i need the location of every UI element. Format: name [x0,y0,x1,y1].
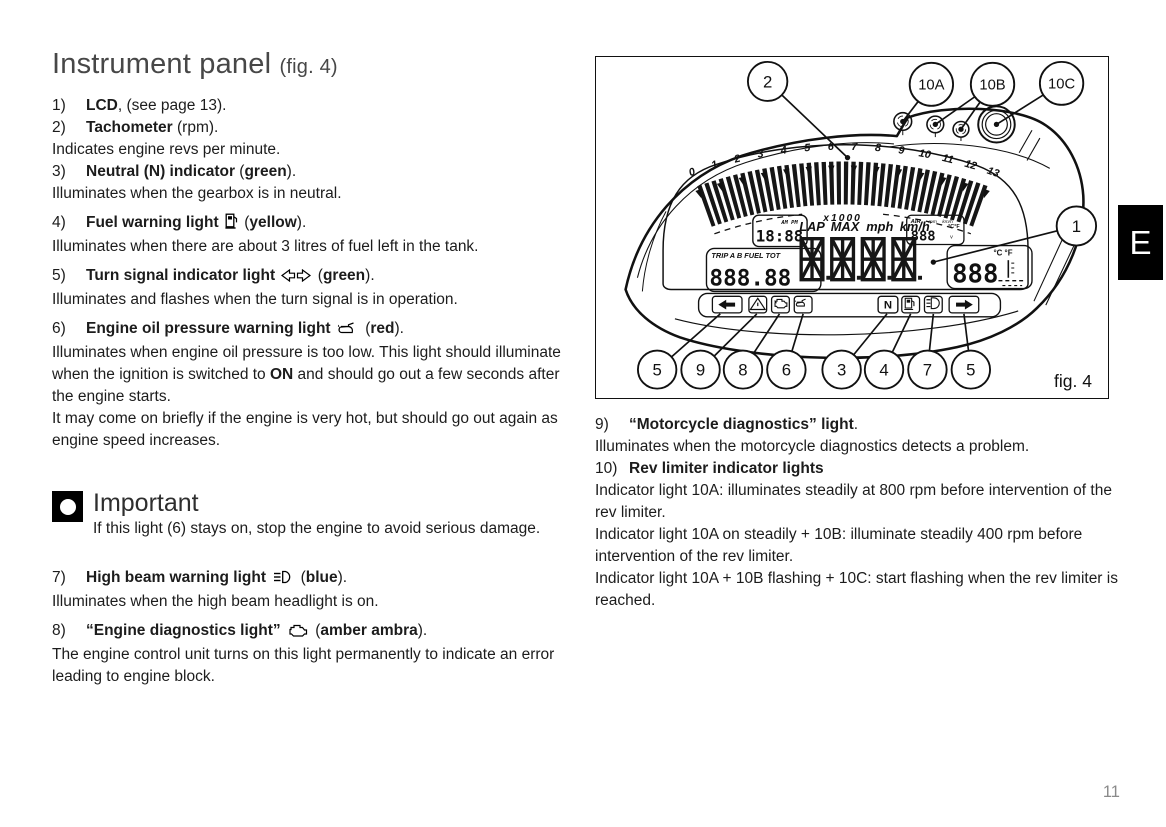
text-run: , (see page 13). [118,97,227,114]
lcd-decimal-dot [857,276,861,280]
item-title: “Motorcycle diagnostics” light. [629,416,858,433]
callout-label-10B: 10B [979,78,1006,94]
item-number: 1) [52,95,86,117]
callout-label-6: 6 [782,361,791,380]
left-items-list-2: 7)High beam warning light (blue).Illumin… [52,567,575,688]
item-title: LCD, (see page 13). [86,97,226,114]
text-run: Rev limiter indicator lights [629,460,824,477]
callout-label-10C: 10C [1048,77,1076,93]
neutral-indicator-letter: N [884,300,892,312]
text-run: Illuminates and flashes when the turn si… [52,291,458,308]
text-run: Illuminates when the high beam headlight… [52,593,379,610]
manual-item-2: 2)Tachometer (rpm).Indicates engine revs… [52,117,575,161]
right-column: 9)“Motorcycle diagnostics” light.Illumin… [595,414,1119,612]
text-run: amber ambra [320,622,417,639]
text-run: ). [365,267,374,284]
manual-item-3: 3)Neutral (N) indicator (green).Illumina… [52,161,575,205]
temp-units: °C °F [994,248,1013,257]
text-run: ON [270,366,293,383]
mph-label: mph [866,219,893,234]
air-value: 888 [911,229,936,245]
item-body: Illuminates when there are about 3 litre… [52,236,575,258]
item-number: 3) [52,161,86,183]
max-label: MAX [831,219,861,234]
text-run [219,214,223,231]
manual-item-4: 4)Fuel warning light (yellow).Illuminate… [52,212,575,258]
temp-value: 888 [952,260,998,290]
text-run: “Motorcycle diagnostics” light [629,416,854,433]
clock-ampm-label: AM PM [780,220,798,226]
item-body: Indicator light 10A: illuminates steadil… [595,480,1119,524]
engine-diagnostics-icon [287,622,309,644]
figure-caption: fig. 4 [1054,371,1092,392]
figure-4-frame: x1000 012345678910111213 AM PM 18:88 TRI… [595,56,1109,399]
item-title: Turn signal indicator light (green). [86,267,375,284]
text-run: Neutral (N) indicator [86,163,235,180]
clock-value: 18:88 [756,227,803,246]
text-run: LCD [86,97,118,114]
item-title: High beam warning light (blue). [86,569,347,586]
item-number: 2) [52,117,86,139]
item-body: Indicator light 10A + 10B flashing + 10C… [595,568,1119,612]
text-run: Illuminates when there are about 3 litre… [52,238,479,255]
high-beam-icon [272,569,294,591]
text-run: Indicator light 10A on steadily + 10B: i… [595,526,1082,565]
manual-item-9: 9)“Motorcycle diagnostics” light.Illumin… [595,414,1119,458]
tach-scale-label: 10 [918,147,932,161]
item-number: 8) [52,620,86,642]
text-run: Engine oil pressure warning light [86,320,331,337]
callout-label-1: 1 [1072,217,1081,236]
manual-item-8: 8)“Engine diagnostics light” (amber ambr… [52,620,575,688]
text-run: ). [418,622,427,639]
item-title: “Engine diagnostics light” (amber ambra)… [86,622,427,639]
text-run: yellow [249,214,296,231]
page-number: 11 [1090,783,1120,802]
text-run: green [244,163,286,180]
text-run: green [323,267,365,284]
item-title: Neutral (N) indicator (green). [86,163,296,180]
item-body: Indicates engine revs per minute. [52,139,575,161]
instrument-panel-diagram: x1000 012345678910111213 AM PM 18:88 TRI… [596,57,1104,394]
oil-pressure-icon [337,320,359,342]
callout-label-5: 5 [652,361,661,380]
trip-value: 888.88 [709,266,791,292]
text-run: Turn signal indicator light [86,267,275,284]
item-number: 4) [52,212,86,234]
text-run [275,267,279,284]
air-volt-label: v [950,235,953,241]
callout-label-8: 8 [738,361,747,380]
text-run: ( [313,267,322,284]
text-run: red [370,320,394,337]
manual-item-6: 6)Engine oil pressure warning light (red… [52,318,575,452]
section-tab-e: E [1118,205,1163,280]
text-run: Tachometer [86,119,173,136]
text-run [281,622,285,639]
lcd-decimal-dot [826,276,830,280]
lcd-main-digits [801,239,922,280]
item-body: Illuminates when the high beam headlight… [52,591,575,613]
text-run: ). [287,163,296,180]
tach-scale-label: 0 [687,166,697,179]
important-icon [52,491,83,522]
manual-item-1: 1)LCD, (see page 13). [52,95,575,117]
fuel-pump-icon [225,213,238,236]
text-run: (rpm). [173,119,219,136]
text-run: ). [395,320,404,337]
text-run: “Engine diagnostics light” [86,622,281,639]
callout-target-dot [900,119,905,124]
text-run: Illuminates when the gearbox is in neutr… [52,185,342,202]
manual-item-7: 7)High beam warning light (blue).Illumin… [52,567,575,613]
item-number: 5) [52,265,86,287]
air-label: AIR [910,219,922,225]
text-run: Indicator light 10A + 10B flashing + 10C… [595,570,1118,609]
important-icon-circle [60,499,76,515]
page-title-fig-ref: (fig. 4) [279,56,337,78]
page-title: Instrument panel (fig. 4) [52,48,575,81]
item-body: It may come on briefly if the engine is … [52,408,575,452]
item-body: Illuminates and flashes when the turn si… [52,289,575,311]
callout-target-dot [958,127,963,132]
text-run: Illuminates when the motorcycle diagnost… [595,438,1029,455]
text-run [266,569,270,586]
text-run: It may come on briefly if the engine is … [52,410,558,449]
air-units: °C°F [948,224,960,230]
item-number: 7) [52,567,86,589]
turn-signals-icon [281,267,311,289]
text-run: Fuel warning light [86,214,219,231]
callout-label-2: 2 [763,72,772,91]
text-run: Indicates engine revs per minute. [52,141,280,158]
item-number: 10) [595,458,629,480]
text-run: High beam warning light [86,569,266,586]
text-run: ). [297,214,306,231]
callout-target-dot [994,122,999,127]
lcd-main-digit [832,239,854,280]
item-number: 9) [595,414,629,436]
text-run: ). [338,569,347,586]
manual-page: Instrument panel (fig. 4) 1)LCD, (see pa… [0,0,1166,827]
item-number: 6) [52,318,86,340]
text-run: ( [240,214,249,231]
item-body: Illuminates when the motorcycle diagnost… [595,436,1119,458]
lcd-main-digit [801,239,823,280]
item-body: Indicator light 10A on steadily + 10B: i… [595,524,1119,568]
air-sub-rpm: rpm [928,219,936,225]
important-heading: Important [52,488,575,518]
item-title: Engine oil pressure warning light (red). [86,320,404,337]
callout-label-10A: 10A [918,78,945,94]
text-run: ( [311,622,320,639]
left-items-list: 1)LCD, (see page 13).2)Tachometer (rpm).… [52,95,575,452]
important-text: If this light (6) stays on, stop the eng… [52,518,575,540]
callout-label-7: 7 [923,361,932,380]
item-title: Tachometer (rpm). [86,119,218,136]
text-run: ( [361,320,370,337]
right-items-list: 9)“Motorcycle diagnostics” light.Illumin… [595,414,1119,612]
text-run: . [854,416,858,433]
item-body: Illuminates when engine oil pressure is … [52,342,575,408]
callout-label-4: 4 [879,361,888,380]
callout-label-3: 3 [837,361,846,380]
tach-scale-label: 8 [874,142,881,154]
page-title-text: Instrument panel [52,48,271,80]
text-run: Indicator light 10A: illuminates steadil… [595,482,1112,521]
left-column: Instrument panel (fig. 4) 1)LCD, (see pa… [52,48,575,688]
item-body: The engine control unit turns on this li… [52,644,575,688]
item-title: Fuel warning light (yellow). [86,214,306,231]
item-body: Illuminates when the gearbox is in neutr… [52,183,575,205]
lcd-decimal-dot [918,276,922,280]
callout-label-5: 5 [966,361,975,380]
callout-target-dot [845,155,850,160]
lcd-main-digit [862,239,884,280]
lap-label: LAP [799,219,825,234]
trip-labels: TRIP A B FUEL TOT [711,251,781,260]
lcd-decimal-dot [887,276,891,280]
callout-label-9: 9 [696,361,705,380]
item-title: Rev limiter indicator lights [629,460,824,477]
manual-item-10: 10)Rev limiter indicator lightsIndicator… [595,458,1119,612]
callout-target-dot [931,259,936,264]
text-run: blue [306,569,338,586]
text-run: ( [296,569,305,586]
important-note: Important If this light (6) stays on, st… [52,488,575,540]
callout-target-dot [933,122,938,127]
text-run [331,320,335,337]
text-run: The engine control unit turns on this li… [52,646,554,685]
manual-item-5: 5)Turn signal indicator light (green).Il… [52,265,575,311]
